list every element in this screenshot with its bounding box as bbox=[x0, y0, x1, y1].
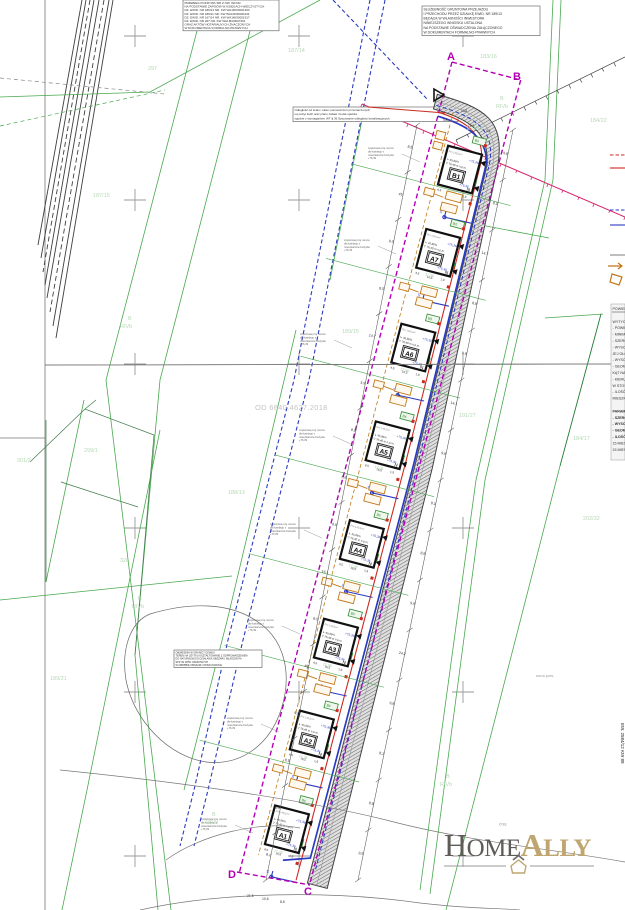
svg-text:mieszkańców budynku: mieszkańców budynku bbox=[300, 339, 327, 343]
svg-text:W DOKUMENTACH FORMALNO-PRAWNYC: W DOKUMENTACH FORMALNO-PRAWNYCH bbox=[185, 26, 248, 30]
svg-text:RIVb: RIVb bbox=[132, 604, 144, 610]
svg-text:328: 328 bbox=[120, 558, 129, 564]
svg-text:mieszkańców budynku: mieszkańców budynku bbox=[270, 529, 297, 533]
svg-text:B: B bbox=[128, 316, 132, 322]
svg-text:189/21: 189/21 bbox=[50, 676, 67, 682]
svg-text:mieszkańców budynku: mieszkańców budynku bbox=[227, 723, 254, 727]
svg-text:częściowa proj. terenu: częściowa proj. terenu bbox=[344, 238, 370, 242]
svg-text:mieszkańców budynku: mieszkańców budynku bbox=[368, 153, 395, 157]
svg-text:- GEOMET: - GEOMET bbox=[613, 365, 625, 369]
svg-text:B: B bbox=[446, 774, 450, 780]
svg-text:W STOSUN: W STOSUN bbox=[613, 384, 625, 388]
svg-text:częściowa proj. terenu: częściowa proj. terenu bbox=[248, 618, 274, 622]
svg-text:188/13: 188/13 bbox=[228, 490, 245, 496]
svg-text:RIVb: RIVb bbox=[120, 324, 132, 330]
svg-text:10,8: 10,8 bbox=[461, 109, 467, 113]
svg-text:- POWIER: - POWIER bbox=[613, 326, 625, 330]
svg-text:częściowa proj. terenu: częściowa proj. terenu bbox=[227, 716, 253, 720]
svg-text:189/15: 189/15 bbox=[342, 329, 359, 335]
svg-text:W OBRĘBIE OBSZARU OPRACOWANIA: W OBRĘBIE OBSZARU OPRACOWANIA bbox=[176, 664, 223, 667]
svg-text:SŁUŻEBNOŚĆ GRUNTOWA PRZEJAZDU: SŁUŻEBNOŚĆ GRUNTOWA PRZEJAZDU bbox=[424, 6, 489, 11]
svg-text:BĘDĄCĄ W WŁASNOŚCI INWESTORA: BĘDĄCĄ W WŁASNOŚCI INWESTORA bbox=[424, 16, 486, 21]
svg-text:- ILOŚĆ KO: - ILOŚĆ KO bbox=[613, 389, 625, 394]
svg-text:299/1: 299/1 bbox=[84, 448, 98, 454]
svg-text:+76,39: +76,39 bbox=[227, 726, 236, 730]
svg-text:- SZEROK: - SZEROK bbox=[613, 339, 625, 343]
svg-text:184/17: 184/17 bbox=[573, 436, 590, 442]
svg-text:- WYSOKO: - WYSOKO bbox=[613, 345, 625, 349]
svg-text:183/16: 183/16 bbox=[480, 54, 497, 60]
svg-text:częściowa proj. terenu: częściowa proj. terenu bbox=[368, 146, 394, 150]
svg-text:B: B bbox=[513, 71, 521, 83]
svg-text:RIVb: RIVb bbox=[206, 820, 218, 826]
svg-text:45: 45 bbox=[398, 192, 403, 197]
svg-text:- KIERUNE: - KIERUNE bbox=[613, 377, 625, 381]
svg-text:dla każdego z: dla każdego z bbox=[299, 431, 316, 435]
svg-text:mieszkańców budynku: mieszkańców budynku bbox=[299, 435, 326, 439]
svg-text:10,6: 10,6 bbox=[262, 897, 269, 901]
svg-text:WYTYCZ: WYTYCZ bbox=[613, 320, 625, 324]
svg-text:4,6: 4,6 bbox=[486, 129, 491, 133]
svg-text:B: B bbox=[138, 596, 142, 602]
svg-text:PARAMET: PARAMET bbox=[613, 409, 625, 413]
svg-text:mieszkańców budynku: mieszkańców budynku bbox=[344, 245, 371, 249]
svg-text:4,8: 4,8 bbox=[443, 118, 448, 122]
svg-text:I PRZECHODU PRZEZ DZIAŁKĘ EWID: I PRZECHODU PRZEZ DZIAŁKĘ EWID. NR 189/1… bbox=[424, 12, 502, 16]
svg-text:NINIEJSZEGO WNIOSKU USTALONA: NINIEJSZEGO WNIOSKU USTALONA bbox=[424, 21, 483, 25]
svg-text:184/22: 184/22 bbox=[590, 118, 607, 124]
svg-text:187/15: 187/15 bbox=[93, 193, 110, 199]
svg-text:C: C bbox=[304, 886, 312, 898]
svg-text:częściowa proj. terenu: częściowa proj. terenu bbox=[300, 332, 326, 336]
svg-text:EW. 2584/12 KW 88: EW. 2584/12 KW 88 bbox=[620, 723, 625, 764]
svg-text:POWIERZ: POWIERZ bbox=[613, 307, 625, 311]
svg-text:78,0: 78,0 bbox=[498, 822, 507, 827]
svg-text:+76,39: +76,39 bbox=[270, 532, 279, 536]
svg-text:częściowa proj. terenu: częściowa proj. terenu bbox=[270, 522, 296, 526]
svg-text:JEJ GŁÓW: JEJ GŁÓW bbox=[613, 351, 625, 356]
svg-text:dla każdego z: dla każdego z bbox=[368, 149, 385, 153]
svg-text:OD 6640.4627.2018: OD 6640.4627.2018 bbox=[255, 403, 328, 412]
svg-text:KĄT NACH: KĄT NACH bbox=[613, 371, 625, 375]
svg-text:MIESZKA: MIESZKA bbox=[613, 397, 625, 401]
svg-text:- SZEROK: - SZEROK bbox=[613, 416, 625, 420]
svg-text:+76,39: +76,39 bbox=[344, 248, 353, 252]
svg-text:191/27: 191/27 bbox=[459, 413, 476, 419]
svg-text:W DOKUMENTACH FORMALNO-PRAWNYC: W DOKUMENTACH FORMALNO-PRAWNYCH bbox=[424, 30, 496, 34]
svg-text:zgodne z wymaganiem WT § 36 Sy: zgodne z wymaganiem WT § 36 Sytuowanie o… bbox=[295, 116, 390, 120]
svg-text:dla każdego z: dla każdego z bbox=[344, 241, 361, 245]
svg-text:297: 297 bbox=[148, 66, 157, 72]
svg-text:mieszkańców budynku: mieszkańców budynku bbox=[248, 625, 275, 629]
svg-text:15 MIESZK: 15 MIESZK bbox=[613, 441, 625, 445]
svg-text:dla każdego z: dla każdego z bbox=[227, 719, 244, 723]
svg-text:301/2: 301/2 bbox=[17, 458, 31, 464]
svg-text:A: A bbox=[447, 51, 455, 63]
svg-text:częściowa proj. terenu: częściowa proj. terenu bbox=[299, 428, 325, 432]
svg-text:- GEOMET: - GEOMET bbox=[613, 429, 625, 433]
svg-text:+76,39: +76,39 bbox=[300, 342, 309, 346]
svg-text:B: B bbox=[500, 96, 504, 102]
svg-text:15 MIESZK: 15 MIESZK bbox=[613, 448, 625, 452]
svg-text:- WYSOKO: - WYSOKO bbox=[613, 358, 625, 362]
svg-text:202/32: 202/32 bbox=[583, 516, 600, 522]
svg-text:RIVb: RIVb bbox=[440, 782, 452, 788]
svg-text:B: B bbox=[212, 812, 216, 818]
svg-text:+76,39: +76,39 bbox=[248, 628, 257, 632]
svg-text:dla każdego z: dla każdego z bbox=[270, 525, 287, 529]
svg-text:45: 45 bbox=[304, 664, 309, 669]
svg-text:150/13: 150/13 bbox=[466, 126, 483, 132]
svg-text:NA PODSTAWIE OŚWIADCZENIA ZAŁĄ: NA PODSTAWIE OŚWIADCZENIA ZAŁĄCZONEGO bbox=[424, 25, 503, 30]
svg-text:D: D bbox=[228, 869, 236, 881]
svg-text:- WYSOKO: - WYSOKO bbox=[613, 422, 625, 426]
svg-text:- ILOŚĆ KO: - ILOŚĆ KO bbox=[613, 434, 625, 439]
svg-text:sona pow.: sona pow. bbox=[536, 673, 554, 678]
svg-text:+76,39: +76,39 bbox=[368, 156, 377, 160]
svg-text:8,6: 8,6 bbox=[280, 900, 285, 904]
svg-text:187/14: 187/14 bbox=[288, 48, 305, 54]
svg-text:+76,39: +76,39 bbox=[299, 438, 308, 442]
svg-text:- MINIMA: - MINIMA bbox=[613, 333, 625, 337]
svg-text:dla każdego z: dla każdego z bbox=[300, 335, 317, 339]
svg-text:RIVb: RIVb bbox=[496, 104, 508, 110]
svg-text:+76,39: +76,39 bbox=[201, 827, 210, 831]
